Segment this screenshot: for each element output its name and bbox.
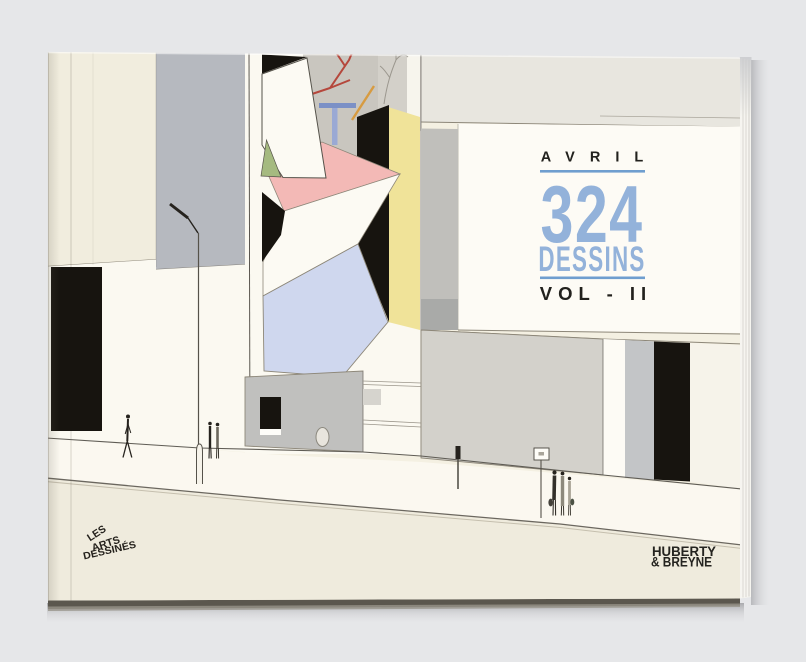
svg-text:& BREYNE: & BREYNE — [651, 555, 712, 570]
svg-text:VOL - II: VOL - II — [540, 283, 652, 304]
svg-text:AVRIL: AVRIL — [541, 150, 658, 166]
svg-text:DESSINS: DESSINS — [538, 240, 645, 279]
